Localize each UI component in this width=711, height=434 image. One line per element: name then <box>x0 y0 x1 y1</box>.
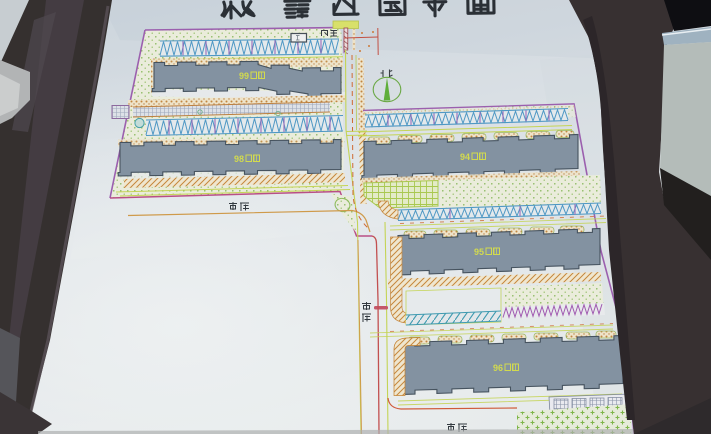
svg-text:95: 95 <box>474 247 484 257</box>
svg-text:99: 99 <box>239 71 249 81</box>
svg-text:94: 94 <box>460 152 470 162</box>
svg-text:96: 96 <box>493 363 503 373</box>
svg-text:98: 98 <box>234 154 244 164</box>
